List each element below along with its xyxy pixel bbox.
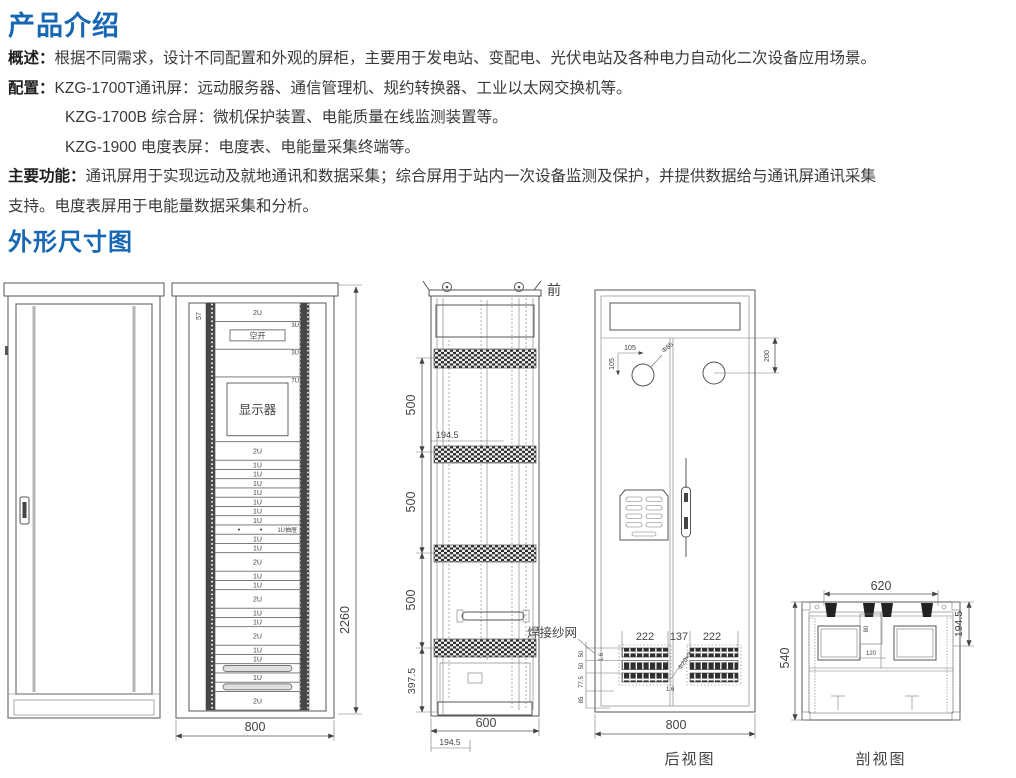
mesh-thickness-1: 1.6 [599, 652, 605, 661]
dim-500-1: 500 [404, 395, 418, 416]
rear-top-vent [610, 303, 740, 330]
config-label: 配置： [8, 80, 55, 97]
ladder-dim-50a: 50 [579, 650, 585, 657]
svg-text:2U: 2U [253, 449, 262, 456]
section-view-caption: 剖视图 [855, 751, 906, 768]
ladder-dim-85: 85 [579, 696, 585, 703]
mesh-dim-ladder: 50 50 77.5 85 [579, 642, 622, 708]
config-line-1: KZG-1700T通讯屏：远动服务器、通信管理机、规约转换器、工业以太网交换机等… [55, 80, 632, 97]
cable-hole-left [632, 364, 654, 386]
svg-text:1U: 1U [253, 583, 262, 590]
svg-text:1U: 1U [253, 546, 262, 553]
front-door-view [4, 283, 164, 718]
config-line-3: KZG-1900 电度表屏：电度表、电能量采集终端等。 [65, 139, 420, 156]
config-paragraph-2: KZG-1700B 综合屏：微机保护装置、电能质量在线监测装置等。 [8, 103, 1012, 133]
mesh-thickness-2: 1.6 [666, 687, 675, 693]
dim-200: 200 [764, 350, 771, 362]
rear-view-caption: 后视图 [664, 751, 715, 768]
mesh-dim-222-left: 222 [636, 631, 654, 643]
svg-text:1U: 1U [253, 462, 262, 469]
dim-57: 57 [196, 312, 203, 320]
dim-800-front: 800 [245, 720, 266, 734]
welded-mesh-note: 焊接纱网 [527, 625, 577, 640]
functions-label: 主要功能： [8, 168, 86, 185]
svg-text:3U: 3U [291, 351, 299, 357]
svg-text:1U: 1U [253, 490, 262, 497]
svg-text:1U: 1U [253, 573, 262, 580]
dim-800-rear: 800 [666, 718, 687, 732]
dim-194-5-bottom: 194.5 [439, 737, 461, 747]
config-paragraph-3: KZG-1900 电度表屏：电度表、电能量采集终端等。 [8, 133, 1012, 163]
svg-text:2U: 2U [253, 698, 262, 705]
svg-text:1U: 1U [253, 499, 262, 506]
dim-397-5: 397.5 [406, 668, 418, 694]
svg-text:空开: 空开 [250, 330, 266, 340]
dim-500-2: 500 [404, 492, 418, 513]
svg-text:2U: 2U [253, 634, 262, 641]
section-dim-120: 120 [866, 651, 877, 657]
svg-text:1U: 1U [253, 610, 262, 617]
dim-600: 600 [476, 716, 497, 730]
svg-text:1U: 1U [253, 647, 262, 654]
svg-text:2U: 2U [253, 597, 262, 604]
datasheet-page: 产品介绍 概述：根据不同需求，设计不同配置和外观的屏柜，主要用于发电站、变配电、… [0, 0, 1016, 778]
section-dim-80: 80 [864, 625, 870, 632]
dim-194-5-section: 194.5 [953, 611, 965, 637]
rack-panel [215, 349, 300, 377]
svg-text:2U: 2U [253, 560, 262, 567]
svg-text:1U: 1U [253, 509, 262, 516]
rack-rail-right [300, 303, 309, 710]
page-title: 产品介绍 [8, 4, 120, 43]
svg-text:1U: 1U [253, 536, 262, 543]
svg-text:1U: 1U [253, 481, 262, 488]
dim-500-3: 500 [404, 590, 418, 611]
ladder-dim-50b: 50 [579, 662, 585, 669]
front-open-view: 2U空开3U3U显示器7U2U1U1U1U1U1U1U1U1U抽屉1U1U2U1… [172, 283, 362, 741]
functions-line-1: 通讯屏用于实现远动及就地通讯和数据采集；综合屏用于站内一次设备监测及保护，并提供… [86, 168, 877, 185]
rack-rail-left [206, 303, 215, 710]
mesh-dim-137: 137 [670, 631, 688, 643]
louver-vent [620, 490, 668, 540]
dim-2260: 2260 [338, 606, 352, 634]
ladder-dim-77-5: 77.5 [579, 676, 585, 688]
overview-paragraph: 概述：根据不同需求，设计不同配置和外观的屏柜，主要用于发电站、变配电、光伏电站及… [8, 44, 1012, 74]
functions-paragraph: 主要功能：通讯屏用于实现远动及就地通讯和数据采集；综合屏用于站内一次设备监测及保… [8, 162, 1012, 221]
config-line-2: KZG-1700B 综合屏：微机保护装置、电能质量在线监测装置等。 [65, 109, 508, 126]
svg-text:3U: 3U [291, 323, 299, 329]
dim-620: 620 [871, 579, 892, 593]
busbar-clamps [825, 603, 933, 617]
overview-text: 根据不同需求，设计不同配置和外观的屏柜，主要用于发电站、变配电、光伏电站及各种电… [55, 50, 877, 67]
svg-text:显示器: 显示器 [239, 403, 277, 417]
section-view: 80 120 620 540 194.5 剖视图 [778, 579, 974, 768]
rear-door-handle [682, 458, 691, 557]
intro-text-block: 概述：根据不同需求，设计不同配置和外观的屏柜，主要用于发电站、变配电、光伏电站及… [8, 44, 1012, 221]
dim-194-5-mid: 194.5 [436, 430, 459, 440]
rack-panel-stack: 2U空开3U3U显示器7U2U1U1U1U1U1U1U1U1U抽屉1U1U2U1… [215, 303, 300, 710]
svg-text:1U: 1U [253, 675, 262, 682]
svg-text:1U: 1U [253, 472, 262, 479]
overview-label: 概述： [8, 50, 55, 67]
side-view: 前 [404, 281, 561, 752]
svg-text:1U: 1U [253, 657, 262, 664]
svg-text:1U抽屉: 1U抽屉 [277, 526, 297, 534]
svg-text:2U: 2U [253, 310, 262, 317]
svg-text:1U: 1U [253, 518, 262, 525]
svg-text:7U: 7U [291, 378, 299, 384]
door-handle [20, 497, 29, 524]
front-side-label: 前 [547, 282, 561, 298]
hole-dim-h: 105 [624, 345, 636, 352]
mesh-dim-222-right: 222 [703, 631, 721, 643]
hole-dim-v: 105 [609, 358, 616, 370]
dim-540: 540 [778, 648, 792, 669]
functions-line-2: 支持。电度表屏用于电能量数据采集和分析。 [8, 198, 318, 215]
rear-view: 105 105 Φ85 200 [527, 290, 779, 768]
section-title: 外形尺寸图 [8, 222, 133, 257]
dimension-drawings: 2U空开3U3U显示器7U2U1U1U1U1U1U1U1U1U抽屉1U1U2U1… [0, 260, 1016, 778]
config-paragraph-1: 配置：KZG-1700T通讯屏：远动服务器、通信管理机、规约转换器、工业以太网交… [8, 74, 1012, 104]
svg-text:1U: 1U [253, 620, 262, 627]
